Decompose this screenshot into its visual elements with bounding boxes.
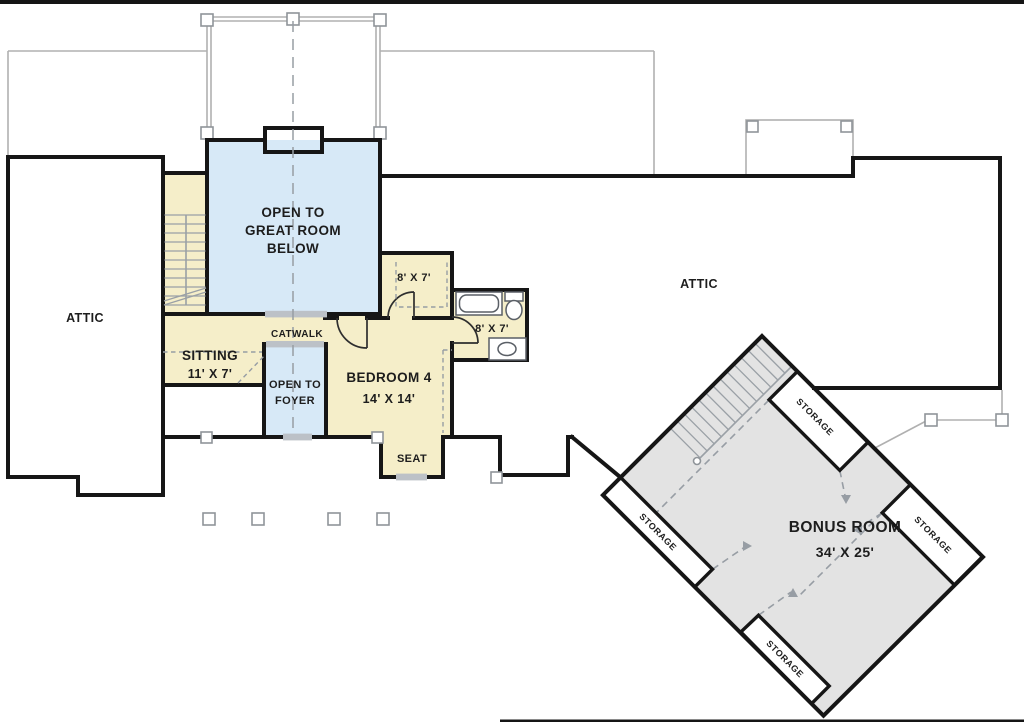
bedroom4-label: BEDROOM 4 [346,370,431,385]
sitting-dim-label: 11' X 7' [188,367,233,381]
floor-plan-page: ATTIC ATTIC OPEN TO GREAT ROOM BELOW CAT… [0,0,1024,722]
bath-dim-label: 8' X 7' [475,323,509,335]
sitting-label: SITTING [182,348,238,363]
great-room-label-2: GREAT ROOM [245,223,341,238]
top-border [0,0,1024,4]
great-room-label-3: BELOW [267,241,319,256]
closet-dim-label: 8' X 7' [397,272,431,284]
bonus-room-label: BONUS ROOM [789,519,902,536]
sink-icon [489,338,526,360]
bathtub-icon [456,292,502,315]
bonus-room-dim-label: 34' X 25' [816,544,875,560]
catwalk-label: CATWALK [271,329,323,340]
foyer-label-1: OPEN TO [269,379,321,391]
stairs-area-fill [163,173,207,314]
great-room-label-1: OPEN TO [261,205,324,220]
stair-newel-post [694,458,701,465]
attic-left-label: ATTIC [66,311,104,325]
closet-fill [382,253,452,318]
bedroom4-dim-label: 14' X 14' [363,392,416,406]
toilet-icon [505,292,523,320]
floor-plan-drawing: ATTIC ATTIC OPEN TO GREAT ROOM BELOW CAT… [0,0,1024,722]
foyer-label-2: FOYER [275,395,315,407]
seat-label: SEAT [397,453,427,465]
attic-right-label: ATTIC [680,277,718,291]
